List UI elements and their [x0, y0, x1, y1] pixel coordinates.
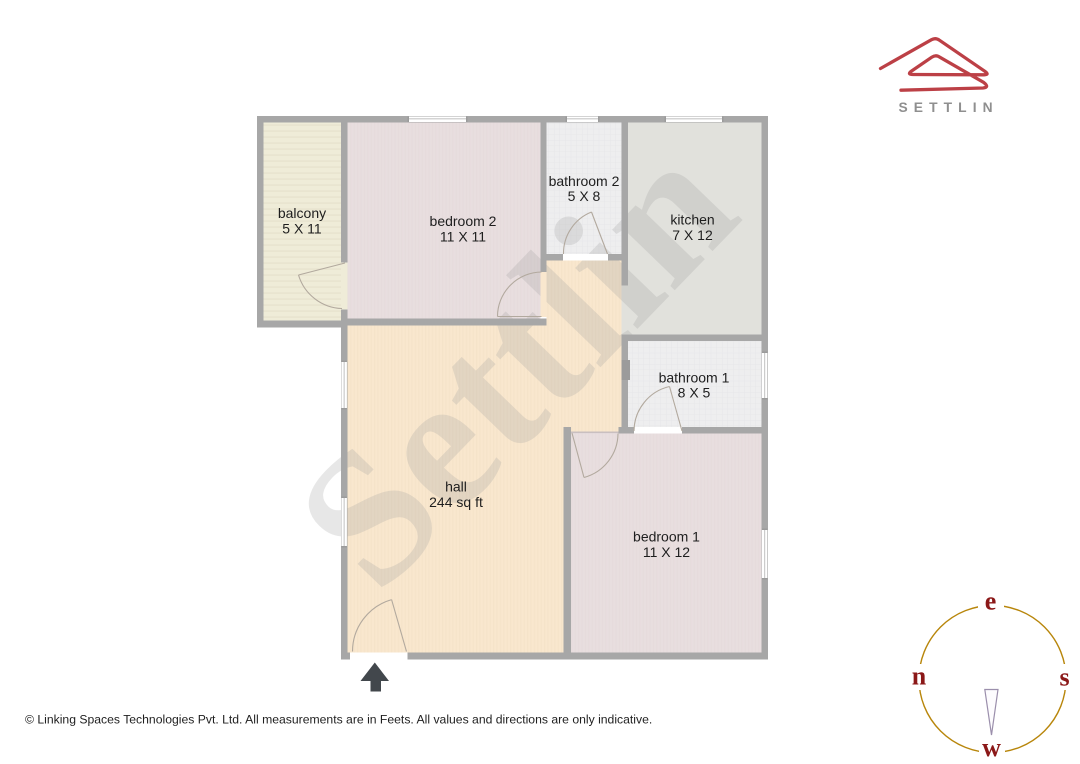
- svg-text:© Linking Spaces Technologies: © Linking Spaces Technologies Pvt. Ltd. …: [25, 713, 652, 727]
- svg-text:bathroom 1: bathroom 1: [659, 370, 730, 386]
- svg-text:s: s: [1059, 663, 1069, 692]
- svg-text:7 X 12: 7 X 12: [672, 227, 713, 243]
- svg-text:w: w: [982, 733, 1001, 762]
- svg-text:bedroom 2: bedroom 2: [430, 213, 497, 229]
- svg-text:bathroom 2: bathroom 2: [549, 173, 620, 189]
- svg-text:hall: hall: [445, 479, 467, 495]
- svg-text:balcony: balcony: [278, 205, 326, 221]
- svg-text:bedroom 1: bedroom 1: [633, 529, 700, 545]
- svg-text:5 X 11: 5 X 11: [282, 221, 322, 237]
- svg-text:n: n: [912, 662, 927, 691]
- svg-text:e: e: [985, 587, 997, 616]
- svg-text:8 X 5: 8 X 5: [678, 385, 711, 401]
- svg-text:11 X 11: 11 X 11: [440, 229, 486, 245]
- svg-text:244 sq ft: 244 sq ft: [429, 494, 483, 510]
- svg-text:11 X 12: 11 X 12: [643, 544, 690, 560]
- svg-text:kitchen: kitchen: [670, 212, 714, 228]
- svg-text:5 X 8: 5 X 8: [568, 188, 601, 204]
- svg-text:SETTLIN: SETTLIN: [899, 100, 999, 115]
